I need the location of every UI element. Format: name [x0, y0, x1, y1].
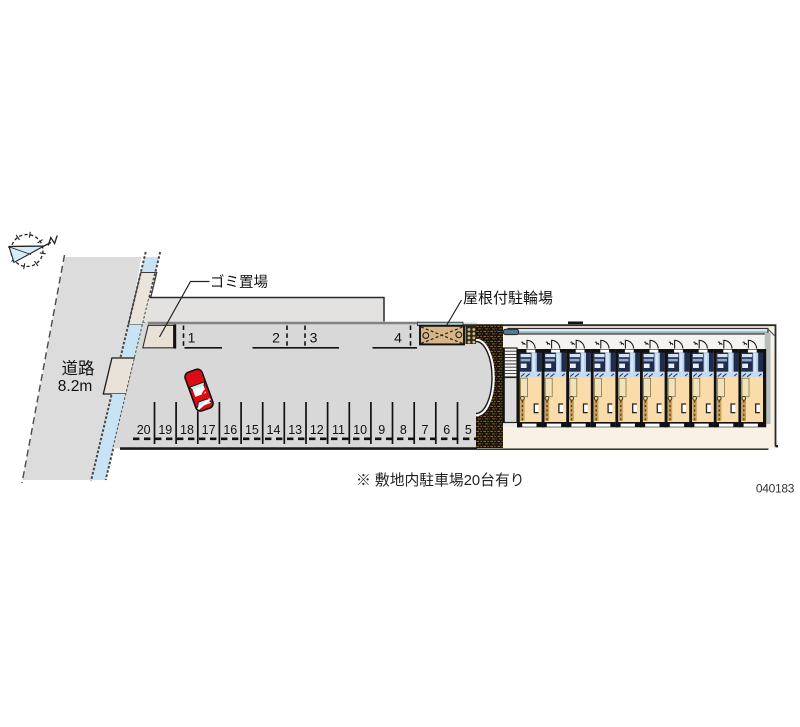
svg-text:6: 6	[443, 423, 450, 437]
svg-text:2: 2	[272, 330, 280, 346]
svg-text:18: 18	[180, 423, 194, 437]
svg-text:4: 4	[394, 330, 402, 346]
svg-text:5: 5	[465, 423, 472, 437]
svg-text:7: 7	[422, 423, 429, 437]
svg-text:16: 16	[223, 423, 237, 437]
svg-text:20: 20	[137, 423, 151, 437]
svg-text:15: 15	[245, 423, 259, 437]
svg-text:ゴミ置場: ゴミ置場	[210, 273, 268, 291]
svg-text:9: 9	[378, 423, 385, 437]
svg-text:17: 17	[202, 423, 216, 437]
svg-text:10: 10	[353, 423, 367, 437]
svg-text:14: 14	[267, 423, 281, 437]
svg-text:040183: 040183	[756, 482, 795, 496]
svg-text:※ 敷地内駐車場20台有り: ※ 敷地内駐車場20台有り	[356, 471, 525, 489]
svg-text:道路: 道路	[62, 359, 96, 378]
svg-text:8: 8	[400, 423, 407, 437]
svg-text:12: 12	[310, 423, 324, 437]
svg-text:3: 3	[310, 330, 318, 346]
svg-text:8.2m: 8.2m	[58, 378, 92, 395]
svg-text:屋根付駐輪場: 屋根付駐輪場	[463, 290, 553, 307]
svg-text:13: 13	[288, 423, 302, 437]
svg-text:11: 11	[332, 423, 345, 437]
svg-text:19: 19	[158, 423, 172, 437]
svg-text:1: 1	[188, 330, 196, 346]
